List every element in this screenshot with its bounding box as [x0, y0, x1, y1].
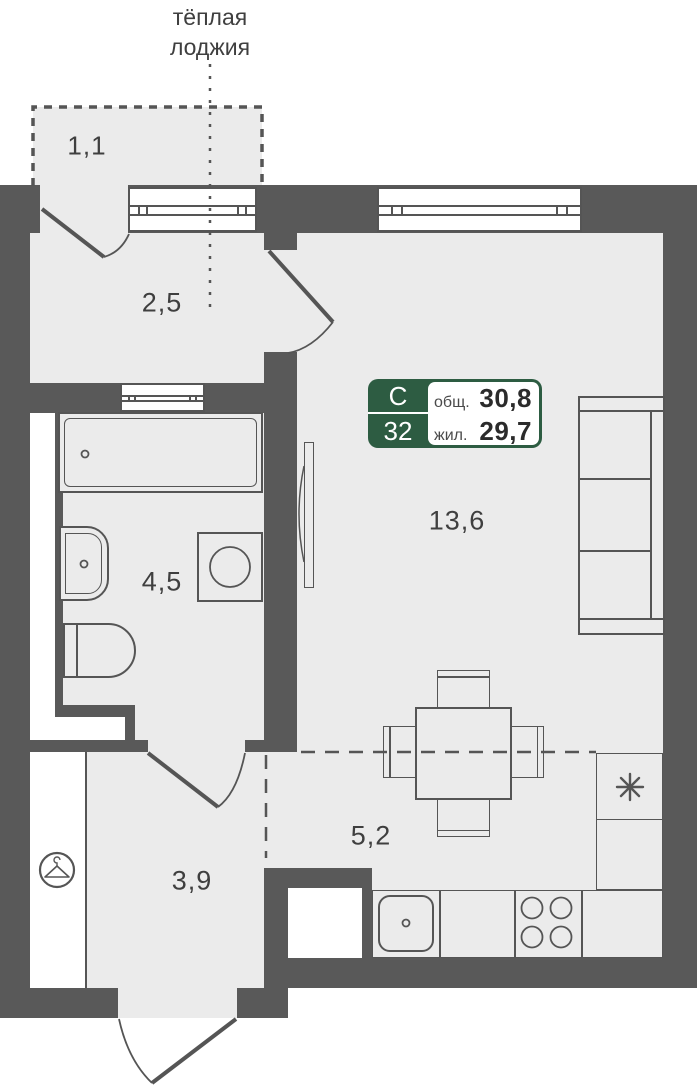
badge-areas-panel: общ. 30,8 жил. 29,7	[428, 382, 539, 445]
entrance-door-arc	[119, 1019, 152, 1083]
wall-shaft-top	[264, 868, 372, 888]
dining-table	[415, 707, 512, 800]
chair-backrest	[438, 676, 489, 678]
opening-entrance-door	[118, 988, 237, 1018]
wall-bottom-left	[0, 988, 118, 1018]
opening-bathroom-door	[148, 740, 245, 752]
area-balcony: 1,1	[67, 131, 106, 162]
tv-panel	[304, 442, 314, 588]
wall-bottom-entrance-right	[237, 988, 288, 1018]
wall-bathroom-bottom-stub	[245, 740, 264, 752]
window-hall	[128, 187, 257, 232]
bathtub-inner	[64, 418, 257, 487]
badge-living-row: жил. 29,7	[434, 417, 532, 450]
area-kitchen: 5,2	[351, 821, 392, 852]
wall-bathroom-bottom	[30, 740, 148, 752]
entrance-door-leaf	[152, 1019, 236, 1083]
counter-divider	[581, 891, 583, 957]
bathtub	[58, 412, 263, 493]
kitchen-sink	[378, 895, 434, 952]
wall-bottom-kitchen	[288, 958, 697, 988]
area-entry: 3,9	[172, 866, 213, 897]
chair-left	[383, 726, 416, 778]
bathroom-sink	[59, 526, 109, 601]
counter-divider	[439, 891, 441, 957]
toilet	[63, 623, 136, 678]
chair-backrest	[537, 727, 539, 777]
wall-shaft-right	[362, 888, 372, 958]
area-hall: 2,5	[142, 288, 183, 319]
badge-divider	[368, 412, 428, 414]
shaft-left-lower	[30, 717, 125, 742]
badge-total-row: общ. 30,8	[434, 384, 532, 417]
floor-passage	[264, 752, 297, 868]
window-living	[377, 187, 582, 232]
shaft-kitchen	[288, 888, 362, 958]
chair-top	[437, 670, 490, 708]
sofa-cushion-line	[580, 550, 652, 552]
badge-unit-number: 32	[384, 416, 413, 446]
wall-right	[663, 185, 697, 988]
wall-left	[0, 185, 30, 1018]
fridge	[596, 753, 663, 820]
opening-balcony-door	[40, 185, 128, 233]
loggia-label-line2: лоджия	[115, 32, 305, 62]
closet-area	[30, 752, 85, 988]
floorplan: тёплая лоджия 1,1 2,5 4,5 13,6 5,2 3,9 С…	[0, 0, 697, 1086]
opening-living-door	[264, 250, 297, 352]
toilet-tank-line	[76, 625, 78, 676]
apartment-badge: С 32 общ. 30,8 жил. 29,7	[368, 379, 542, 448]
chair-backrest	[438, 830, 489, 832]
kitchen-counter-right	[596, 819, 663, 890]
badge-type-section: С 32	[368, 379, 428, 448]
shaft-left	[30, 412, 55, 717]
chair-bottom	[437, 799, 490, 837]
loggia-label: тёплая лоджия	[115, 2, 305, 62]
area-living: 13,6	[429, 506, 486, 537]
chair-backrest	[389, 727, 391, 777]
sofa-cushion-line	[580, 478, 652, 480]
sofa	[578, 396, 665, 635]
sofa-back	[650, 410, 652, 620]
closet-divider-line	[85, 752, 87, 988]
wall-bathroom-step	[55, 705, 135, 717]
area-bathroom: 4,5	[142, 567, 183, 598]
badge-living-label: жил.	[434, 422, 467, 450]
bathroom-sink-inner	[65, 533, 102, 594]
badge-total-value: 30,8	[479, 384, 532, 412]
window-bathroom	[120, 383, 205, 412]
badge-total-label: общ.	[434, 389, 470, 417]
badge-living-value: 29,7	[479, 417, 532, 445]
chair-right	[511, 726, 544, 778]
counter-divider	[514, 891, 516, 957]
washing-machine	[197, 532, 263, 602]
loggia-label-line1: тёплая	[115, 2, 305, 32]
badge-type-letter: С	[389, 381, 408, 411]
